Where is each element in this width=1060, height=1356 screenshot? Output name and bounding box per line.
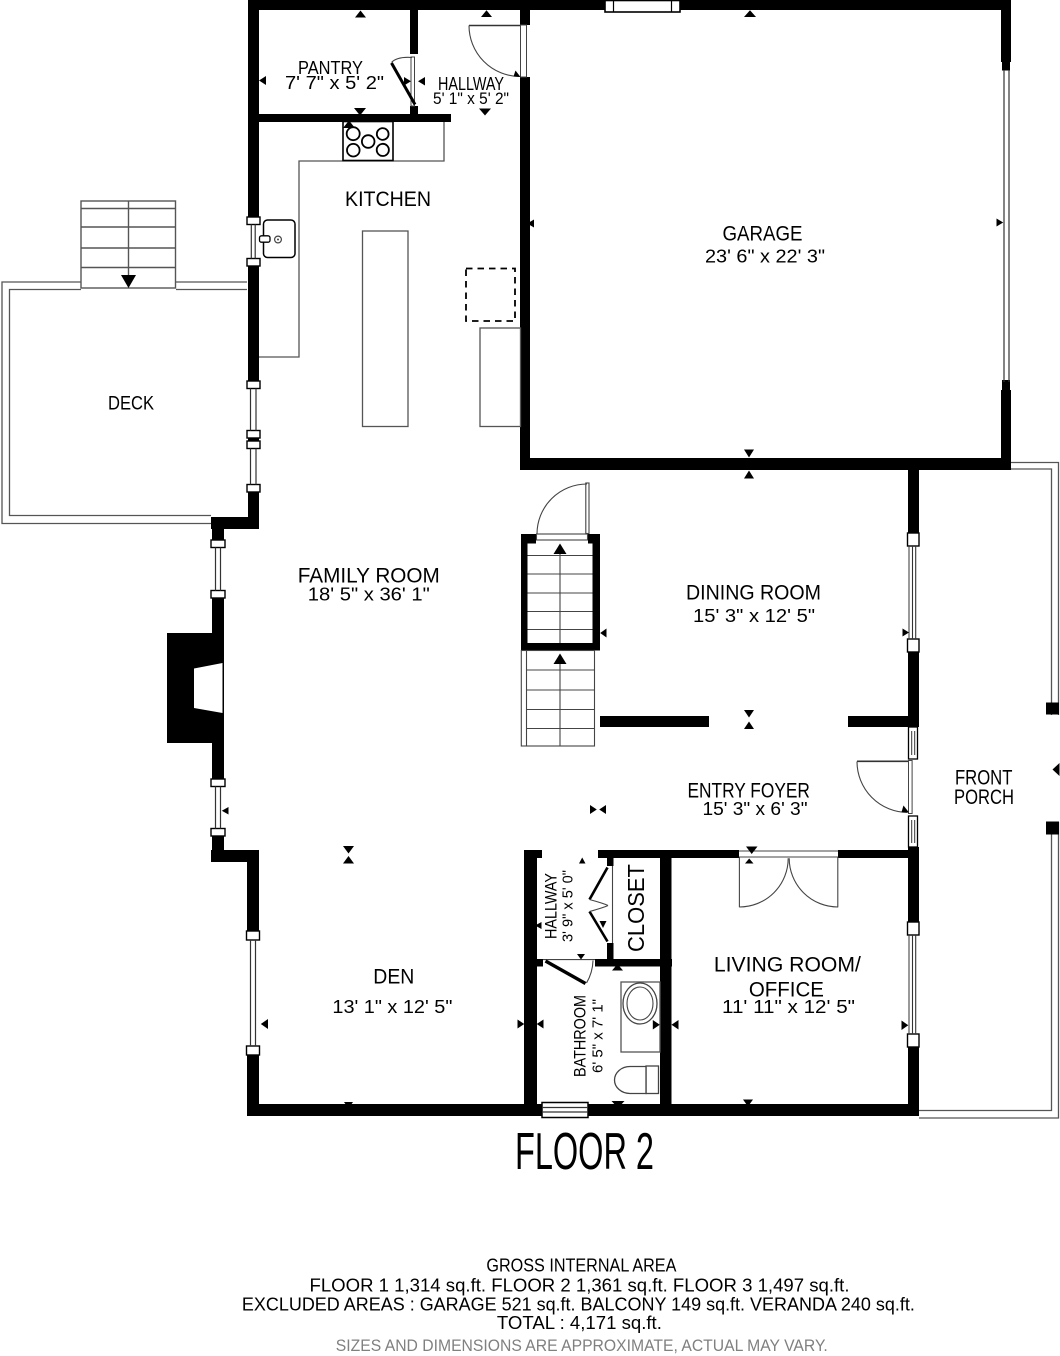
svg-text:SIZES AND DIMENSIONS ARE APPRO: SIZES AND DIMENSIONS ARE APPROXIMATE, AC…: [336, 1336, 828, 1355]
svg-text:13' 1" x 12' 5": 13' 1" x 12' 5": [332, 996, 452, 1017]
svg-text:PORCH: PORCH: [954, 786, 1014, 809]
svg-text:EXCLUDED AREAS : GARAGE 521 s: EXCLUDED AREAS : GARAGE 521 sq.ft. BALCO…: [242, 1295, 915, 1315]
svg-text:FLOOR 2: FLOOR 2: [515, 1122, 654, 1180]
svg-text:BATHROOM: BATHROOM: [571, 995, 590, 1077]
svg-text:15' 3" x 12' 5": 15' 3" x 12' 5": [693, 605, 815, 626]
svg-text:7' 7" x 5' 2": 7' 7" x 5' 2": [285, 73, 384, 93]
svg-text:15' 3" x 6' 3": 15' 3" x 6' 3": [703, 798, 808, 819]
svg-text:DINING ROOM: DINING ROOM: [686, 582, 821, 605]
svg-text:DEN: DEN: [373, 966, 414, 989]
svg-text:DECK: DECK: [108, 394, 154, 415]
svg-text:18' 5" x 36' 1": 18' 5" x 36' 1": [308, 584, 430, 605]
svg-text:HALLWAY: HALLWAY: [542, 873, 561, 939]
svg-text:GROSS INTERNAL AREA: GROSS INTERNAL AREA: [486, 1256, 676, 1276]
svg-text:GARAGE: GARAGE: [723, 223, 803, 246]
svg-text:TOTAL : 4,171 sq.ft.: TOTAL : 4,171 sq.ft.: [497, 1313, 662, 1333]
svg-text:5' 1" x 5' 2": 5' 1" x 5' 2": [433, 89, 509, 108]
svg-text:11' 11" x 12' 5": 11' 11" x 12' 5": [722, 996, 855, 1017]
svg-text:LIVING ROOM/: LIVING ROOM/: [714, 954, 861, 977]
svg-text:KITCHEN: KITCHEN: [345, 188, 431, 211]
svg-text:6' 5" x 7' 1": 6' 5" x 7' 1": [590, 999, 607, 1073]
svg-text:3' 9" x 5' 0": 3' 9" x 5' 0": [560, 870, 577, 942]
svg-text:FLOOR 1 1,314 sq.ft. FLOOR 2: FLOOR 1 1,314 sq.ft. FLOOR 2 1,361 sq.ft…: [310, 1276, 850, 1296]
svg-text:CLOSET: CLOSET: [623, 864, 649, 952]
svg-text:23' 6" x 22' 3": 23' 6" x 22' 3": [705, 246, 825, 267]
